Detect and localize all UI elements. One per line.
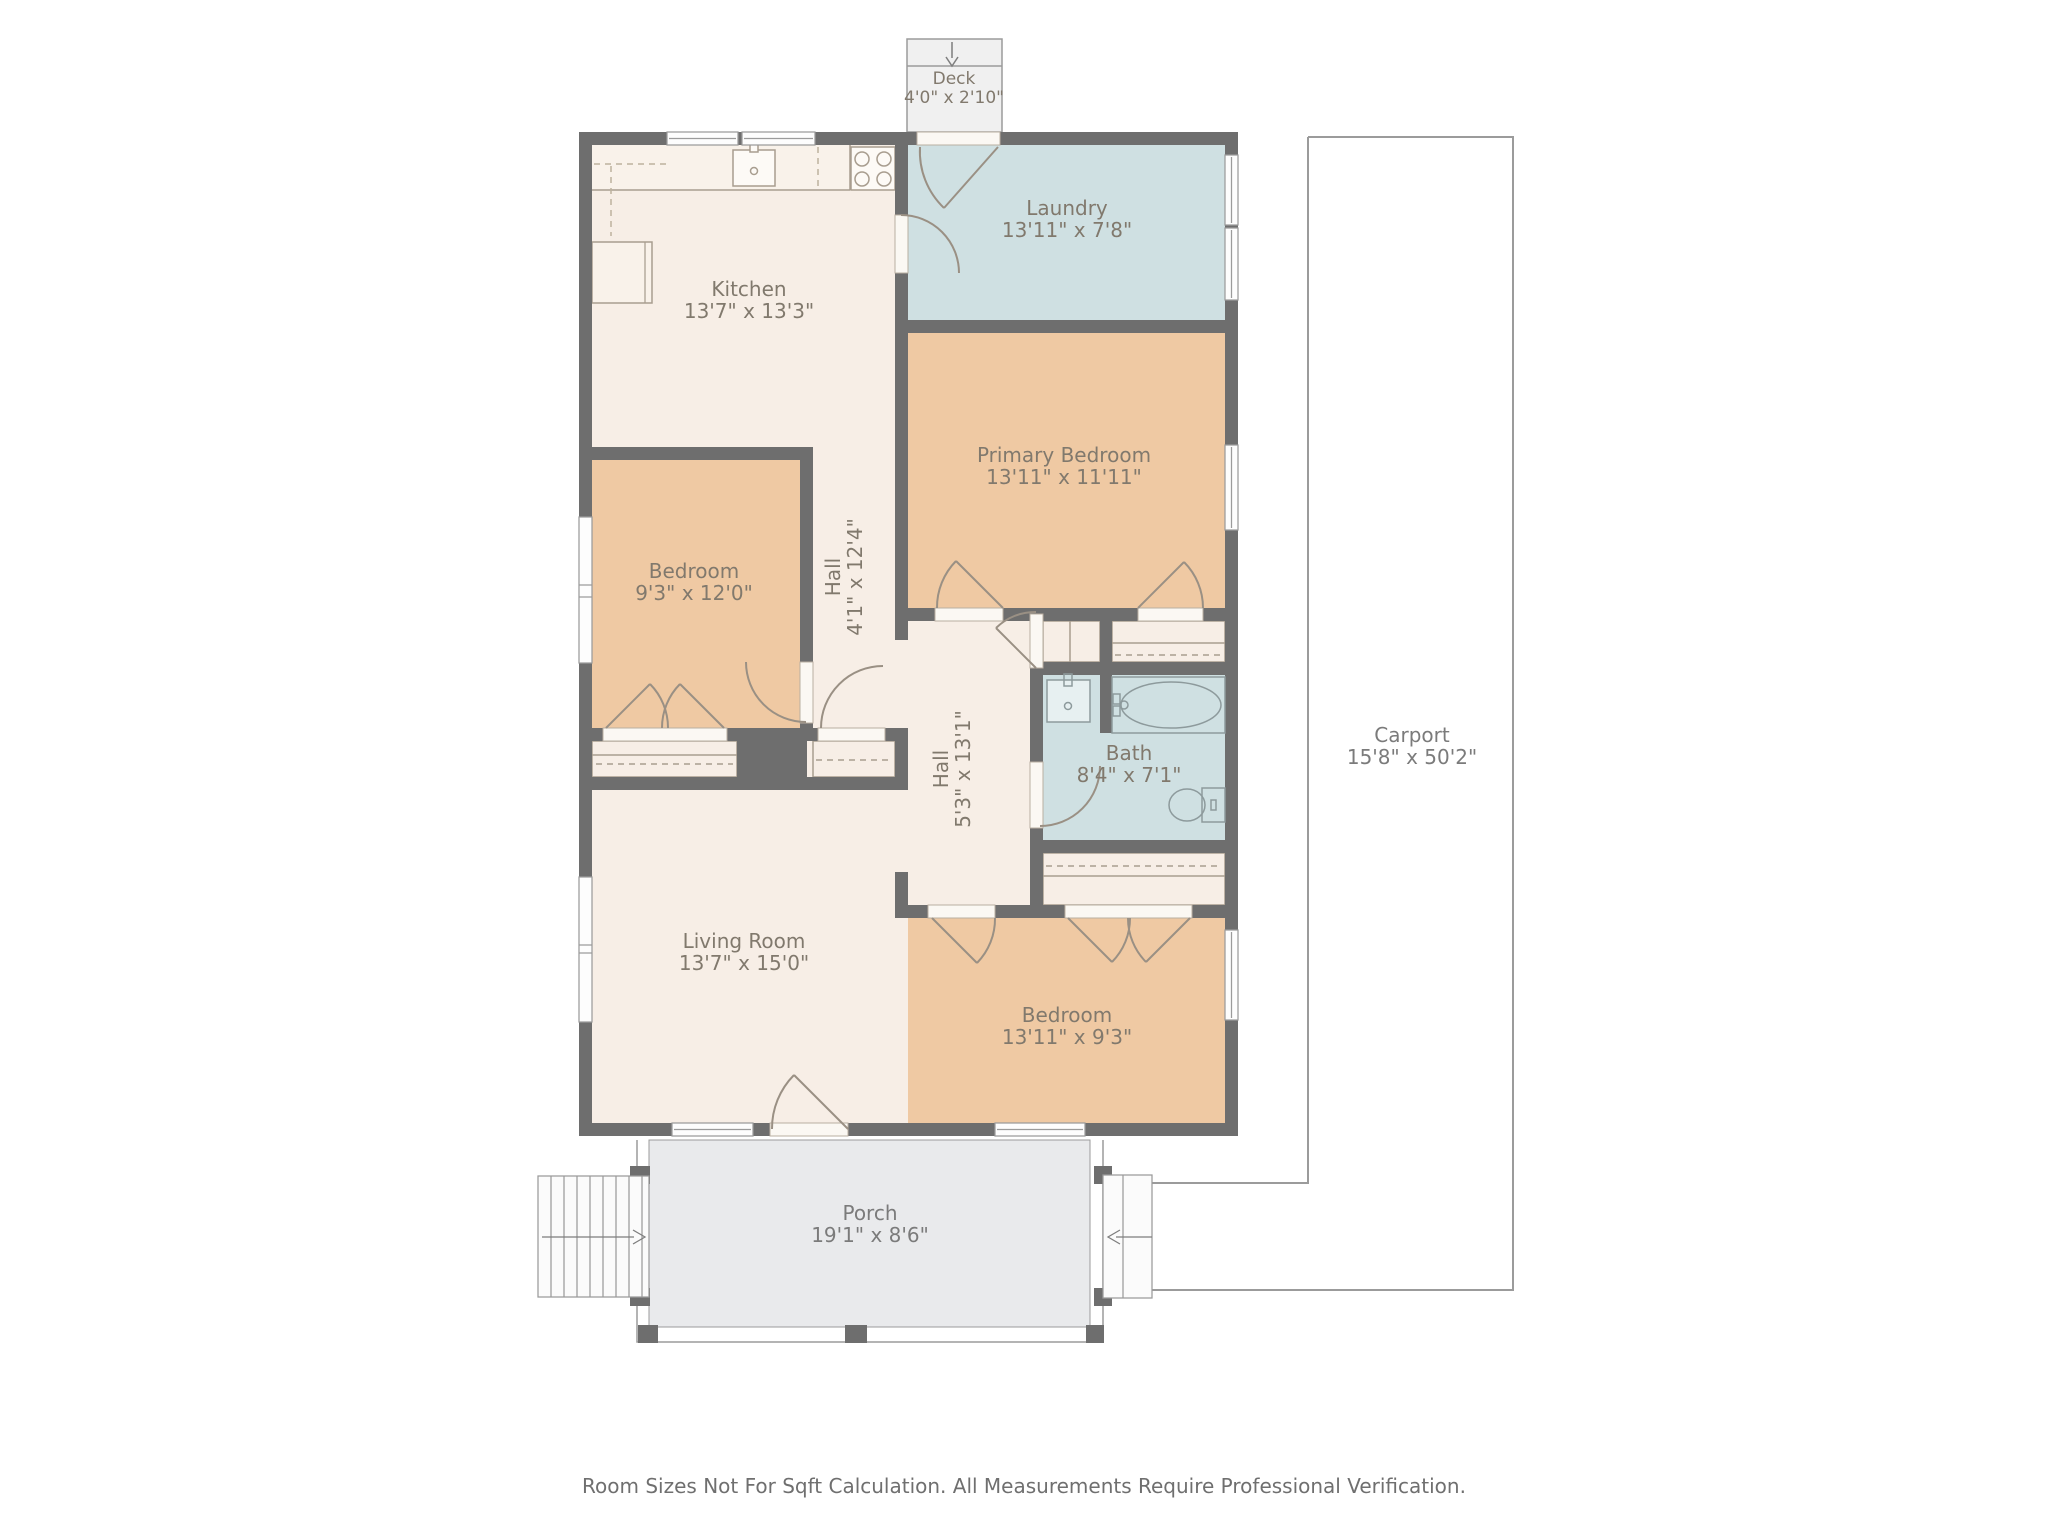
kitchen-counter — [592, 145, 850, 190]
hall-upper-label: Hall 4'1" x 12'4" — [822, 518, 866, 636]
laundry-label: Laundry 13'11" x 7'8" — [1002, 197, 1132, 241]
vanity-sink-icon — [1047, 674, 1090, 722]
stairs-left — [538, 1176, 649, 1297]
bedroom-left-label: Bedroom 9'3" x 12'0" — [635, 560, 753, 604]
stairs-right — [1103, 1175, 1152, 1298]
living-room-label: Living Room 13'7" x 15'0" — [679, 930, 809, 974]
hall-lower-label: Hall 5'3" x 13'1" — [930, 710, 974, 828]
bedroom-rear-label: Bedroom 13'11" x 9'3" — [1002, 1004, 1132, 1048]
primary-bedroom-label: Primary Bedroom 13'11" x 11'11" — [977, 444, 1151, 488]
bath-label: Bath 8'4" x 7'1" — [1077, 742, 1182, 786]
disclaimer-text: Room Sizes Not For Sqft Calculation. All… — [582, 1474, 1466, 1498]
deck-label: Deck 4'0" x 2'10" — [904, 70, 1004, 108]
carport-label: Carport 15'8" x 50'2" — [1347, 724, 1477, 768]
kitchen-peninsula — [592, 242, 652, 303]
floor-plan-page: Deck 4'0" x 2'10" Laundry 13'11" x 7'8" … — [0, 0, 2048, 1536]
porch-label: Porch 19'1" x 8'6" — [811, 1202, 929, 1246]
kitchen-label: Kitchen 13'7" x 13'3" — [684, 278, 814, 322]
stove-icon — [851, 147, 895, 190]
